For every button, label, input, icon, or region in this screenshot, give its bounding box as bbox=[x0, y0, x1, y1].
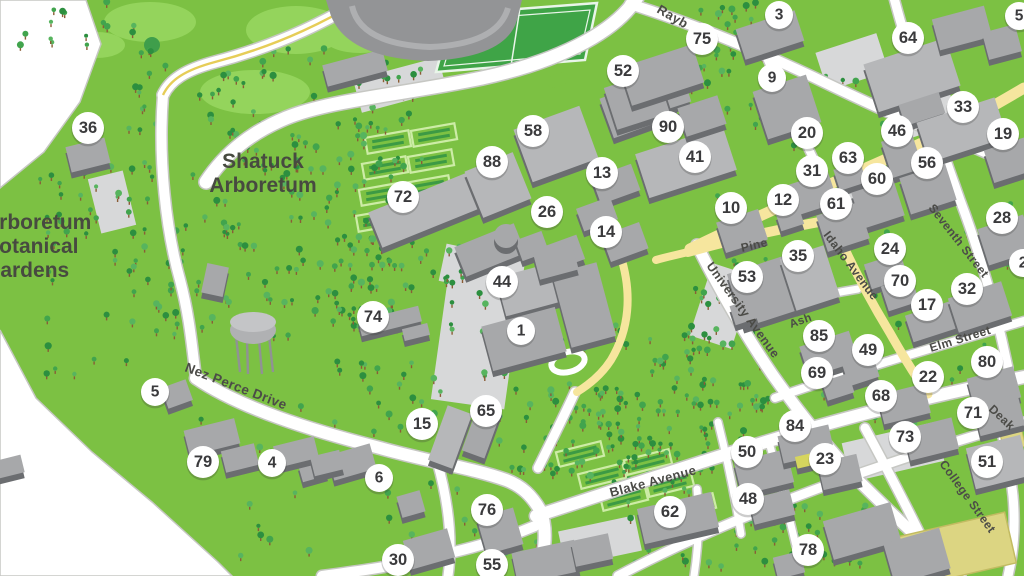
area-label: ShatuckArboretum bbox=[209, 150, 316, 197]
map-marker[interactable]: 64 bbox=[891, 22, 924, 56]
marker-number: 6 bbox=[375, 470, 384, 487]
map-marker[interactable]: 65 bbox=[469, 395, 502, 429]
marker-number: 55 bbox=[483, 556, 501, 574]
map-marker[interactable]: 41 bbox=[678, 141, 711, 175]
map-marker[interactable]: 15 bbox=[405, 408, 438, 442]
marker-number: 35 bbox=[789, 247, 807, 265]
marker-number: 46 bbox=[888, 122, 906, 140]
marker-number: 49 bbox=[859, 341, 877, 359]
map-marker[interactable]: 72 bbox=[386, 181, 419, 215]
marker-number: 75 bbox=[693, 30, 711, 48]
map-marker[interactable]: 78 bbox=[791, 534, 824, 568]
marker-number: 79 bbox=[194, 453, 212, 471]
map-marker[interactable]: 32 bbox=[950, 273, 983, 307]
map-marker[interactable]: 12 bbox=[766, 184, 799, 218]
map-marker[interactable]: 20 bbox=[790, 117, 823, 151]
map-marker[interactable]: 4 bbox=[257, 449, 286, 479]
map-marker[interactable]: 73 bbox=[888, 421, 921, 455]
marker-number: 63 bbox=[839, 149, 857, 167]
map-marker[interactable]: 19 bbox=[986, 118, 1019, 152]
map-marker[interactable]: 24 bbox=[873, 233, 906, 267]
marker-number: 51 bbox=[978, 453, 996, 471]
marker-number: 73 bbox=[896, 428, 914, 446]
map-marker[interactable]: 56 bbox=[910, 147, 943, 181]
map-marker[interactable]: 84 bbox=[778, 410, 811, 444]
map-marker[interactable]: 33 bbox=[946, 91, 979, 125]
marker-number: 62 bbox=[661, 503, 679, 521]
map-marker[interactable]: 75 bbox=[685, 23, 718, 57]
map-marker[interactable]: 51 bbox=[970, 446, 1003, 480]
marker-number: 13 bbox=[593, 164, 611, 182]
marker-number: 5 bbox=[1015, 8, 1024, 25]
map-marker[interactable]: 31 bbox=[795, 155, 828, 189]
marker-number: 17 bbox=[918, 296, 936, 314]
map-marker[interactable]: 62 bbox=[653, 496, 686, 530]
marker-number: 32 bbox=[958, 280, 976, 298]
map-marker[interactable]: 5 bbox=[140, 378, 169, 408]
map-marker[interactable]: 13 bbox=[585, 157, 618, 191]
map-marker[interactable]: 88 bbox=[475, 146, 508, 180]
map-marker[interactable]: 52 bbox=[606, 55, 639, 89]
map-marker[interactable]: 1 bbox=[506, 317, 535, 347]
marker-number: 30 bbox=[389, 551, 407, 569]
map-marker[interactable]: 50 bbox=[730, 436, 763, 470]
map-marker[interactable]: 71 bbox=[956, 397, 989, 431]
marker-number: 3 bbox=[775, 7, 784, 24]
map-marker[interactable]: 26 bbox=[530, 196, 563, 230]
map-marker[interactable]: 79 bbox=[186, 446, 219, 480]
map-marker[interactable]: 63 bbox=[831, 142, 864, 176]
map-marker[interactable]: 3 bbox=[764, 1, 793, 31]
marker-number: 64 bbox=[899, 29, 918, 47]
map-marker[interactable]: 69 bbox=[800, 357, 833, 391]
marker-number: 85 bbox=[810, 327, 828, 345]
marker-number: 31 bbox=[803, 162, 821, 180]
map-marker[interactable]: 46 bbox=[880, 115, 913, 149]
marker-number: 4 bbox=[268, 455, 277, 472]
marker-number: 52 bbox=[614, 62, 632, 80]
map-marker[interactable]: 17 bbox=[910, 289, 943, 323]
marker-number: 76 bbox=[478, 501, 496, 519]
marker-number: 12 bbox=[774, 191, 792, 209]
map-marker[interactable]: 22 bbox=[911, 361, 944, 395]
marker-number: 80 bbox=[978, 353, 996, 371]
marker-number: 71 bbox=[964, 404, 982, 422]
map-marker[interactable]: 48 bbox=[731, 483, 764, 517]
map-marker[interactable]: 61 bbox=[819, 188, 852, 222]
marker-number: 9 bbox=[768, 70, 777, 87]
map-marker[interactable]: 9 bbox=[757, 64, 786, 94]
marker-number: 41 bbox=[686, 148, 704, 166]
map-canvas: ShatuckArboretumArboretumBotanicalGarden… bbox=[0, 0, 1024, 576]
map-marker[interactable]: 14 bbox=[589, 216, 622, 250]
map-marker[interactable]: 44 bbox=[485, 266, 518, 300]
marker-number: 68 bbox=[872, 387, 890, 405]
marker-number: 2 bbox=[1019, 255, 1024, 272]
marker-number: 1 bbox=[517, 323, 526, 340]
marker-number: 36 bbox=[79, 119, 97, 137]
map-marker[interactable]: 60 bbox=[860, 163, 893, 197]
marker-number: 78 bbox=[799, 541, 817, 559]
marker-number: 58 bbox=[524, 122, 542, 140]
marker-number: 56 bbox=[918, 154, 936, 172]
marker-number: 84 bbox=[786, 417, 805, 435]
marker-number: 23 bbox=[816, 450, 834, 468]
marker-number: 74 bbox=[364, 308, 383, 326]
marker-number: 69 bbox=[808, 364, 826, 382]
map-marker[interactable]: 10 bbox=[714, 192, 747, 226]
marker-number: 90 bbox=[659, 118, 677, 136]
map-marker[interactable]: 36 bbox=[71, 112, 104, 146]
marker-number: 24 bbox=[881, 240, 900, 258]
map-marker[interactable]: 53 bbox=[730, 261, 763, 295]
marker-number: 65 bbox=[477, 402, 495, 420]
marker-number: 44 bbox=[493, 273, 512, 291]
marker-number: 72 bbox=[394, 188, 412, 206]
map-marker[interactable]: 23 bbox=[808, 443, 841, 477]
marker-number: 5 bbox=[151, 384, 160, 401]
map-marker[interactable]: 70 bbox=[883, 265, 916, 299]
map-marker[interactable]: 6 bbox=[364, 464, 393, 494]
marker-number: 15 bbox=[413, 415, 431, 433]
map-marker[interactable]: 49 bbox=[851, 334, 884, 368]
map-marker[interactable]: 80 bbox=[970, 346, 1003, 380]
marker-number: 88 bbox=[483, 153, 501, 171]
marker-number: 60 bbox=[868, 170, 886, 188]
marker-number: 70 bbox=[891, 272, 909, 290]
marker-number: 19 bbox=[994, 125, 1012, 143]
marker-number: 48 bbox=[739, 490, 757, 508]
marker-number: 26 bbox=[538, 203, 556, 221]
map-marker[interactable]: 68 bbox=[864, 380, 897, 414]
map-marker[interactable]: 28 bbox=[985, 202, 1018, 236]
map-marker[interactable]: 85 bbox=[802, 320, 835, 354]
marker-number: 61 bbox=[827, 195, 845, 213]
marker-number: 50 bbox=[738, 443, 756, 461]
campus-map: ShatuckArboretumArboretumBotanicalGarden… bbox=[0, 0, 1024, 576]
marker-number: 10 bbox=[722, 199, 740, 217]
marker-number: 20 bbox=[798, 124, 816, 142]
marker-number: 14 bbox=[597, 223, 616, 241]
marker-number: 33 bbox=[954, 98, 972, 116]
map-marker[interactable]: 58 bbox=[516, 115, 549, 149]
marker-number: 28 bbox=[993, 209, 1011, 227]
marker-number: 53 bbox=[738, 268, 756, 286]
map-marker[interactable]: 35 bbox=[781, 240, 814, 274]
map-marker[interactable]: 74 bbox=[356, 301, 389, 335]
map-marker[interactable]: 76 bbox=[470, 494, 503, 528]
marker-number: 22 bbox=[919, 368, 937, 386]
map-marker[interactable]: 90 bbox=[651, 111, 684, 145]
